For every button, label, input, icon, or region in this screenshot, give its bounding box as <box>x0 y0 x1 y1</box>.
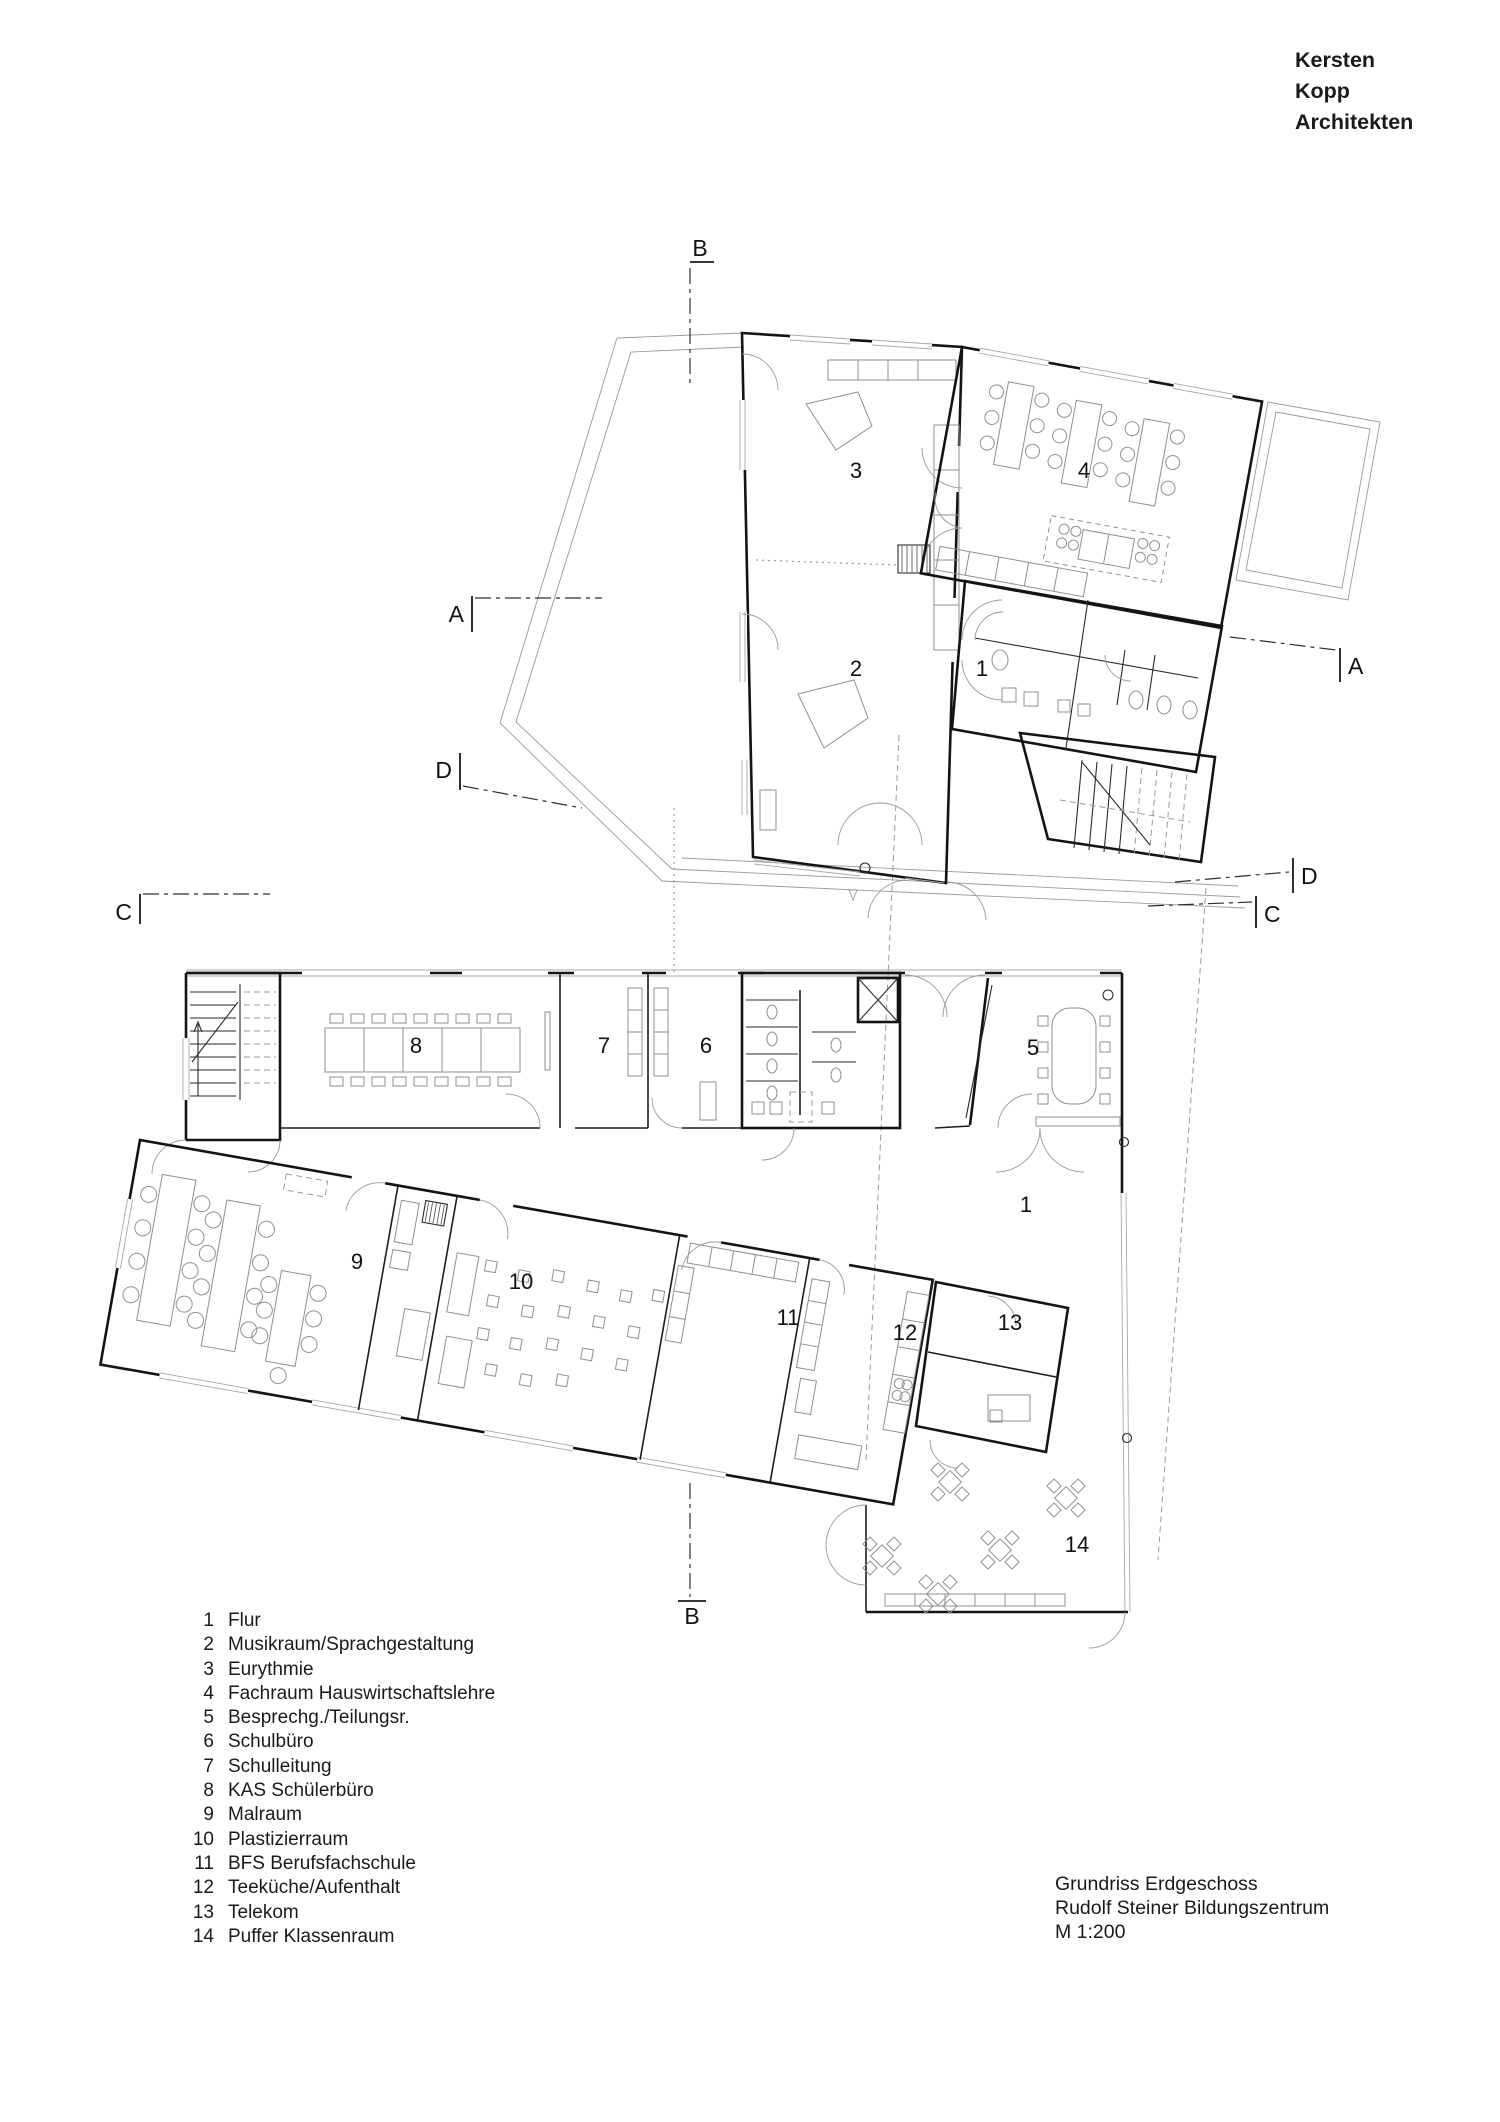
room-label-14: 14 <box>1065 1532 1089 1557</box>
room-label-4: 4 <box>1078 458 1090 483</box>
room-label-9: 9 <box>351 1249 363 1274</box>
room-label-12: 12 <box>893 1320 917 1345</box>
section-marker-d-right: D <box>1301 863 1318 889</box>
legend-item: 12Teeküche/Aufenthalt <box>176 1876 495 1900</box>
projection-lines <box>674 735 1206 1560</box>
legend-label: Plastizierraum <box>228 1828 348 1852</box>
title-line-1: Grundriss Erdgeschoss <box>1055 1872 1329 1896</box>
legend-num: 11 <box>176 1852 214 1876</box>
room-label-11: 11 <box>777 1305 800 1330</box>
upper-wc-block <box>952 581 1222 772</box>
legend-item: 9Malraum <box>176 1803 495 1827</box>
title-line-2: Rudolf Steiner Bildungszentrum <box>1055 1896 1329 1920</box>
title-line-3: M 1:200 <box>1055 1920 1329 1944</box>
legend-num: 1 <box>176 1609 214 1633</box>
legend-num: 9 <box>176 1803 214 1827</box>
legend-num: 13 <box>176 1901 214 1925</box>
room-label-1-lower: 1 <box>1020 1192 1032 1217</box>
room-10-stools <box>434 1253 665 1420</box>
room-13-block <box>916 1282 1068 1468</box>
room-7-furniture <box>628 988 642 1076</box>
hall-rooms-2-3 <box>737 332 962 883</box>
legend-num: 3 <box>176 1658 214 1682</box>
legend-num: 14 <box>176 1925 214 1949</box>
section-marker-a-left: A <box>449 601 465 627</box>
legend-item: 14Puffer Klassenraum <box>176 1925 495 1949</box>
title-block: Grundriss Erdgeschoss Rudolf Steiner Bil… <box>1055 1872 1329 1944</box>
section-marker-a-right: A <box>1348 653 1364 679</box>
legend-label: Flur <box>228 1609 261 1633</box>
room-label-1-upper: 1 <box>976 656 988 681</box>
legend-item: 1Flur <box>176 1609 495 1633</box>
legend-item: 3Eurythmie <box>176 1658 495 1682</box>
room-label-8: 8 <box>410 1033 422 1058</box>
legend-label: KAS Schülerbüro <box>228 1779 374 1803</box>
legend-item: 5Besprechg./Teilungsr. <box>176 1706 495 1730</box>
legend-num: 6 <box>176 1730 214 1754</box>
room-label-3: 3 <box>850 458 862 483</box>
legend-item: 8KAS Schülerbüro <box>176 1779 495 1803</box>
legend-label: BFS Berufsfachschule <box>228 1852 416 1876</box>
legend-label: Schulbüro <box>228 1730 314 1754</box>
legend-label: Telekom <box>228 1901 299 1925</box>
legend-num: 8 <box>176 1779 214 1803</box>
legend-label: Fachraum Hauswirtschaftslehre <box>228 1682 495 1706</box>
room-4-wing <box>921 342 1263 628</box>
room-5 <box>966 978 1120 1128</box>
room-label-5: 5 <box>1027 1035 1039 1060</box>
room-label-13: 13 <box>998 1310 1022 1335</box>
site-boundary <box>500 333 1380 908</box>
architectural-drawing-sheet: Kersten Kopp Architekten <box>0 0 1500 2122</box>
room-8-furniture <box>325 1012 550 1086</box>
section-marker-c-left: C <box>115 899 132 925</box>
lower-floor-plan: 8 7 6 5 1 9 10 11 12 13 14 <box>96 970 1132 1648</box>
room-2-furniture <box>760 680 868 830</box>
legend-label: Schulleitung <box>228 1755 332 1779</box>
legend-label: Besprechg./Teilungsr. <box>228 1706 410 1730</box>
wing-kitchenette <box>375 1196 450 1360</box>
legend-item: 13Telekom <box>176 1901 495 1925</box>
upper-stair <box>1020 733 1215 862</box>
legend-label: Puffer Klassenraum <box>228 1925 395 1949</box>
legend-item: 10Plastizierraum <box>176 1828 495 1852</box>
room-9-furniture <box>112 1150 345 1390</box>
legend-label: Teeküche/Aufenthalt <box>228 1876 400 1900</box>
legend-num: 4 <box>176 1682 214 1706</box>
section-marker-c-right: C <box>1264 901 1281 927</box>
legend: 1Flur 2Musikraum/Sprachgestaltung 3Euryt… <box>176 1609 495 1949</box>
legend-item: 6Schulbüro <box>176 1730 495 1754</box>
section-marker-b-top: B <box>692 235 707 261</box>
legend-num: 12 <box>176 1876 214 1900</box>
legend-item: 11BFS Berufsfachschule <box>176 1852 495 1876</box>
room-12-furniture <box>781 1275 929 1477</box>
room-label-2: 2 <box>850 656 862 681</box>
legend-num: 10 <box>176 1828 214 1852</box>
room-4-tables <box>975 379 1189 509</box>
room-label-10: 10 <box>509 1269 533 1294</box>
legend-label: Musikraum/Sprachgestaltung <box>228 1633 474 1657</box>
legend-item: 7Schulleitung <box>176 1755 495 1779</box>
room-label-7: 7 <box>598 1033 610 1058</box>
legend-num: 2 <box>176 1633 214 1657</box>
room-4-kitchen-island <box>1043 516 1169 583</box>
legend-num: 5 <box>176 1706 214 1730</box>
legend-item: 2Musikraum/Sprachgestaltung <box>176 1633 495 1657</box>
section-marker-d-left: D <box>435 757 452 783</box>
legend-label: Eurythmie <box>228 1658 314 1682</box>
lower-wc-block <box>742 973 900 1128</box>
legend-num: 7 <box>176 1755 214 1779</box>
lower-south-wing <box>96 1136 934 1509</box>
lower-stairwell <box>186 973 280 1140</box>
legend-item: 4Fachraum Hauswirtschaftslehre <box>176 1682 495 1706</box>
legend-label: Malraum <box>228 1803 302 1827</box>
section-marker-b-bottom: B <box>684 1603 699 1629</box>
room-label-6: 6 <box>700 1033 712 1058</box>
upper-floor-plan: 3 4 2 1 <box>737 332 1263 920</box>
